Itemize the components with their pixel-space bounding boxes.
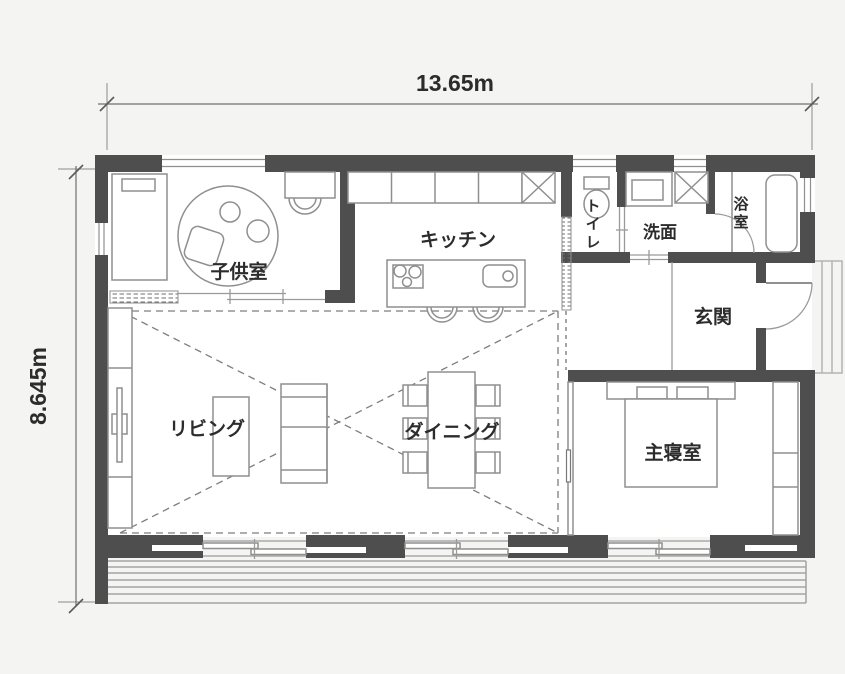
entrance-porch bbox=[810, 261, 842, 373]
height-dimension-label: 8.645m bbox=[25, 347, 51, 425]
washroom-label: 洗面 bbox=[643, 222, 677, 242]
kitchen-label: キッチン bbox=[420, 230, 496, 251]
entry-alcove-floor bbox=[800, 258, 812, 372]
living-label: リビング bbox=[169, 417, 245, 440]
toilet-label: トイレ bbox=[584, 198, 601, 252]
kids-room-label: 子供室 bbox=[210, 260, 267, 283]
washing-machine bbox=[675, 172, 708, 203]
kitchen-island bbox=[387, 260, 525, 307]
refrigerator bbox=[522, 172, 555, 203]
width-dimension-label: 13.65m bbox=[416, 70, 494, 96]
kids-room-side-window bbox=[95, 223, 108, 255]
bathroom-label: 浴室 bbox=[732, 195, 749, 232]
dimension-width: 13.65m bbox=[98, 70, 819, 150]
south-sliding-doors bbox=[203, 539, 710, 559]
washroom-window bbox=[674, 155, 706, 172]
dining-label: ダイニング bbox=[404, 420, 499, 443]
sofa bbox=[281, 384, 327, 483]
dimension-height: 8.645m bbox=[25, 165, 100, 613]
bedroom-closet bbox=[773, 382, 798, 535]
double-bed bbox=[607, 382, 735, 487]
kitchen-tall-cabinet bbox=[562, 217, 571, 310]
entrance-label: 玄関 bbox=[694, 305, 732, 328]
wood-deck bbox=[95, 558, 806, 604]
floor-plan-page: 13.65m 8.645m bbox=[0, 0, 845, 674]
bathroom-window bbox=[800, 178, 815, 212]
bedroom-west-wall bbox=[567, 382, 574, 535]
kids-room-top-window bbox=[162, 155, 265, 172]
kitchen-wall-cabinets bbox=[348, 172, 522, 203]
dining-sliding-door bbox=[405, 539, 508, 559]
bedroom-sliding-door bbox=[608, 539, 710, 559]
master-bedroom-label: 主寝室 bbox=[644, 441, 701, 464]
living-sliding-door bbox=[203, 539, 306, 559]
toilet-window bbox=[573, 155, 616, 172]
floor-plan-drawing: 13.65m 8.645m bbox=[0, 0, 845, 674]
kids-closet bbox=[110, 291, 178, 303]
kids-bed bbox=[112, 174, 167, 280]
